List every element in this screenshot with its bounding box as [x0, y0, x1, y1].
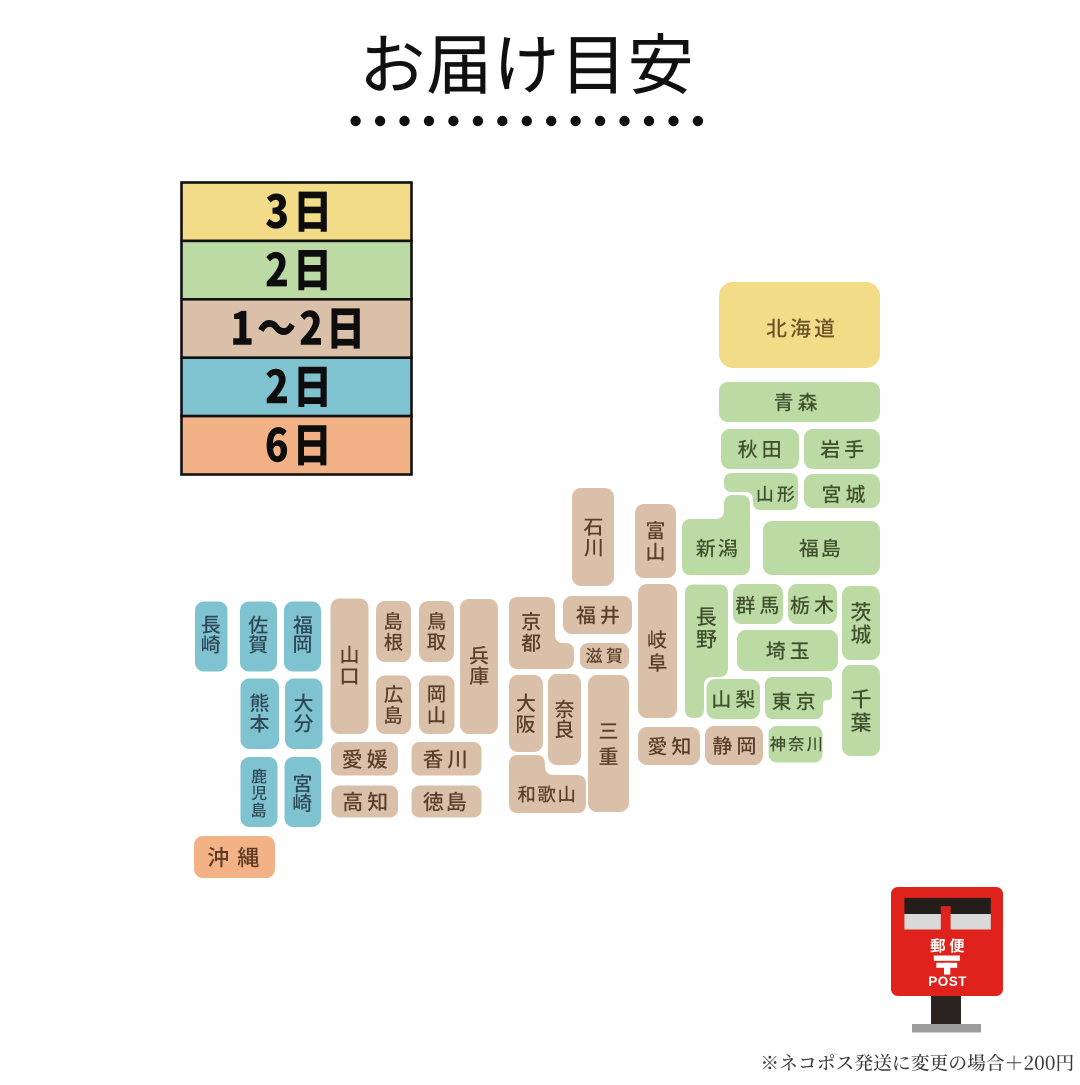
- svg-text:POST: POST: [928, 974, 967, 989]
